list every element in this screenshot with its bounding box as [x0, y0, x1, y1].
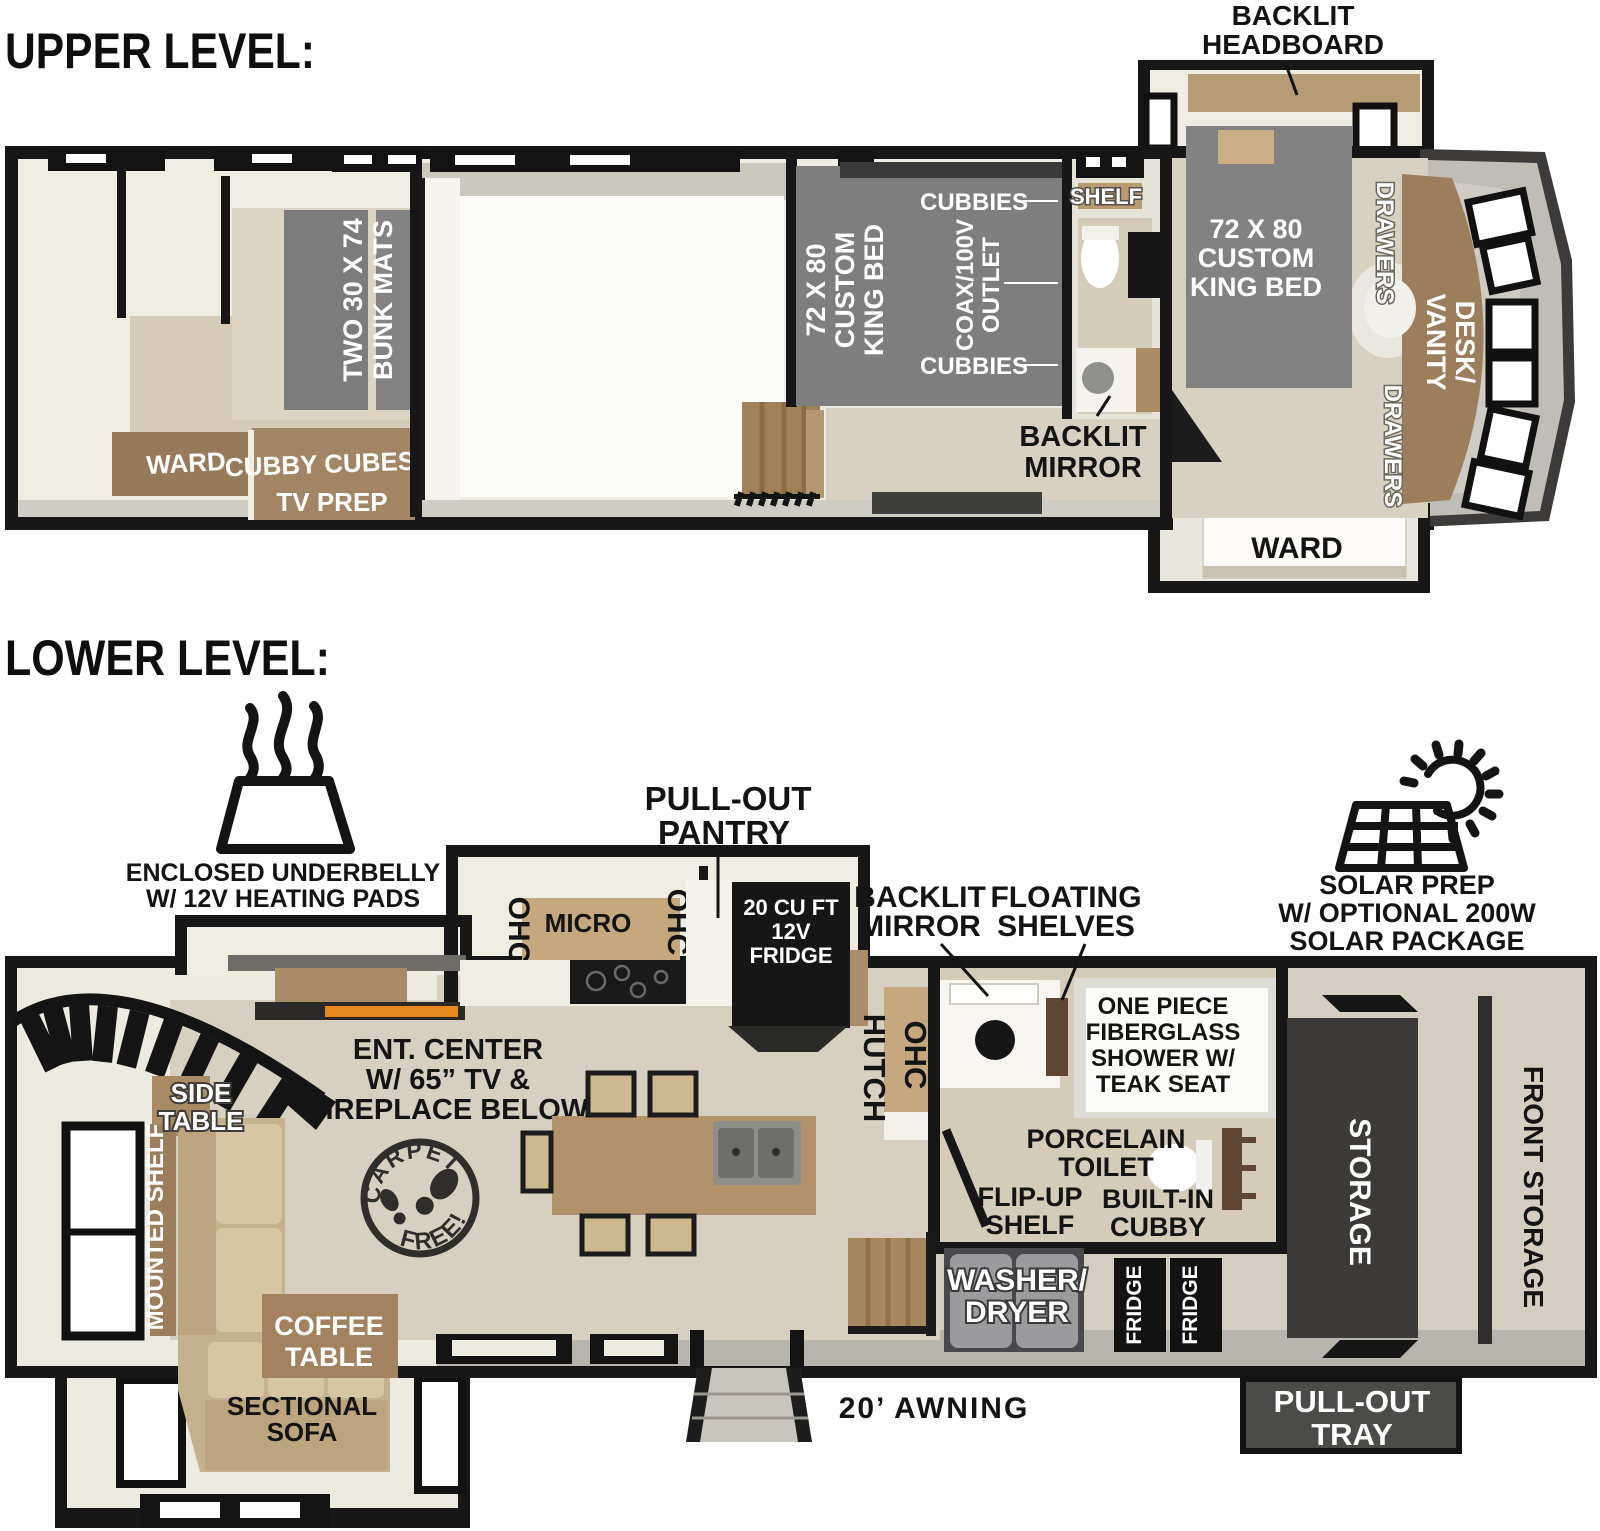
svg-text:TV PREP: TV PREP: [276, 487, 387, 517]
svg-text:FRONT STORAGE: FRONT STORAGE: [1518, 1066, 1549, 1308]
svg-text:SIDE: SIDE: [171, 1078, 232, 1108]
svg-text:20 CU FT: 20 CU FT: [743, 895, 839, 920]
svg-text:BUNK MATS: BUNK MATS: [368, 220, 398, 380]
svg-text:72 X 80: 72 X 80: [1209, 214, 1302, 244]
svg-text:COFFEE: COFFEE: [274, 1311, 384, 1341]
svg-text:DRYER: DRYER: [965, 1296, 1069, 1329]
svg-text:COAX/100V: COAX/100V: [952, 219, 979, 351]
svg-text:CUBBY: CUBBY: [1110, 1212, 1206, 1242]
svg-text:DRAWERS: DRAWERS: [1379, 385, 1406, 508]
svg-text:PORCELAIN: PORCELAIN: [1026, 1124, 1185, 1154]
svg-text:VANITY: VANITY: [1421, 293, 1451, 390]
svg-text:FLIP-UP: FLIP-UP: [978, 1182, 1083, 1212]
svg-text:TOILET: TOILET: [1058, 1152, 1154, 1182]
svg-text:CUBBIES: CUBBIES: [920, 189, 1028, 216]
svg-text:TABLE: TABLE: [159, 1106, 244, 1136]
svg-text:HUTCH: HUTCH: [857, 1014, 892, 1123]
svg-text:W/ OPTIONAL 200W: W/ OPTIONAL 200W: [1278, 898, 1536, 928]
svg-text:TEAK SEAT: TEAK SEAT: [1096, 1071, 1231, 1098]
svg-text:OUTLET: OUTLET: [978, 237, 1005, 333]
svg-text:BACKLIT: BACKLIT: [1232, 0, 1355, 31]
svg-text:12V: 12V: [771, 919, 810, 944]
svg-text:FRIDGE: FRIDGE: [749, 943, 832, 968]
svg-text:BACKLIT: BACKLIT: [1019, 421, 1147, 453]
svg-text:72 X 80: 72 X 80: [801, 243, 831, 336]
svg-text:LOWER LEVEL:: LOWER LEVEL:: [5, 630, 330, 686]
svg-text:W/ 12V HEATING PADS: W/ 12V HEATING PADS: [146, 885, 420, 913]
svg-text:ONE PIECE: ONE PIECE: [1098, 993, 1229, 1020]
svg-text:DRAWERS: DRAWERS: [1371, 182, 1398, 305]
svg-text:SHELF: SHELF: [1070, 184, 1142, 209]
svg-text:KING BED: KING BED: [1190, 272, 1322, 302]
svg-text:TABLE: TABLE: [285, 1342, 373, 1372]
svg-text:DESK/: DESK/: [1450, 301, 1480, 384]
svg-text:SOLAR PREP: SOLAR PREP: [1319, 870, 1495, 900]
svg-text:BUILT-IN: BUILT-IN: [1102, 1184, 1214, 1214]
svg-text:PULL-OUT: PULL-OUT: [645, 780, 812, 817]
svg-text:MOUNTED SHELF: MOUNTED SHELF: [142, 1124, 169, 1331]
svg-text:FIREPLACE BELOW: FIREPLACE BELOW: [308, 1094, 589, 1126]
svg-text:SHOWER W/: SHOWER W/: [1091, 1045, 1235, 1072]
svg-text:SHELF: SHELF: [986, 1210, 1075, 1240]
svg-text:CUSTOM: CUSTOM: [1198, 243, 1315, 273]
svg-text:MIRROR: MIRROR: [1024, 452, 1142, 484]
svg-text:ENCLOSED UNDERBELLY: ENCLOSED UNDERBELLY: [126, 859, 441, 887]
svg-text:MIRROR: MIRROR: [859, 910, 981, 943]
svg-text:SHELVES: SHELVES: [997, 910, 1135, 943]
svg-text:W/ 65” TV &: W/ 65” TV &: [366, 1064, 530, 1096]
svg-text:TWO 30 X 74: TWO 30 X 74: [338, 218, 368, 382]
svg-text:FIBERGLASS: FIBERGLASS: [1086, 1019, 1241, 1046]
svg-text:20’ AWNING: 20’ AWNING: [839, 1392, 1030, 1425]
svg-text:WARD: WARD: [1251, 532, 1343, 565]
svg-text:OHC: OHC: [898, 1021, 933, 1090]
svg-text:HEADBOARD: HEADBOARD: [1202, 29, 1384, 60]
svg-text:SOFA: SOFA: [267, 1417, 338, 1447]
svg-text:PANTRY: PANTRY: [658, 814, 790, 851]
svg-text:KING BED: KING BED: [859, 224, 889, 356]
svg-text:UPPER LEVEL:: UPPER LEVEL:: [5, 23, 315, 79]
svg-text:ENT. CENTER: ENT. CENTER: [353, 1034, 543, 1066]
svg-text:FRIDGE: FRIDGE: [1123, 1265, 1146, 1344]
svg-text:CUSTOM: CUSTOM: [830, 232, 860, 349]
svg-text:CUBBIES: CUBBIES: [920, 353, 1028, 380]
svg-text:STORAGE: STORAGE: [1343, 1118, 1376, 1266]
svg-text:SOLAR PACKAGE: SOLAR PACKAGE: [1289, 926, 1524, 956]
svg-text:MICRO: MICRO: [545, 908, 632, 938]
svg-text:WASHER/: WASHER/: [947, 1264, 1088, 1297]
svg-text:WARD: WARD: [146, 446, 227, 480]
svg-text:TRAY: TRAY: [1311, 1417, 1393, 1452]
svg-text:PULL-OUT: PULL-OUT: [1274, 1384, 1431, 1419]
svg-text:FRIDGE: FRIDGE: [1179, 1265, 1202, 1344]
svg-text:OHC: OHC: [502, 897, 535, 964]
